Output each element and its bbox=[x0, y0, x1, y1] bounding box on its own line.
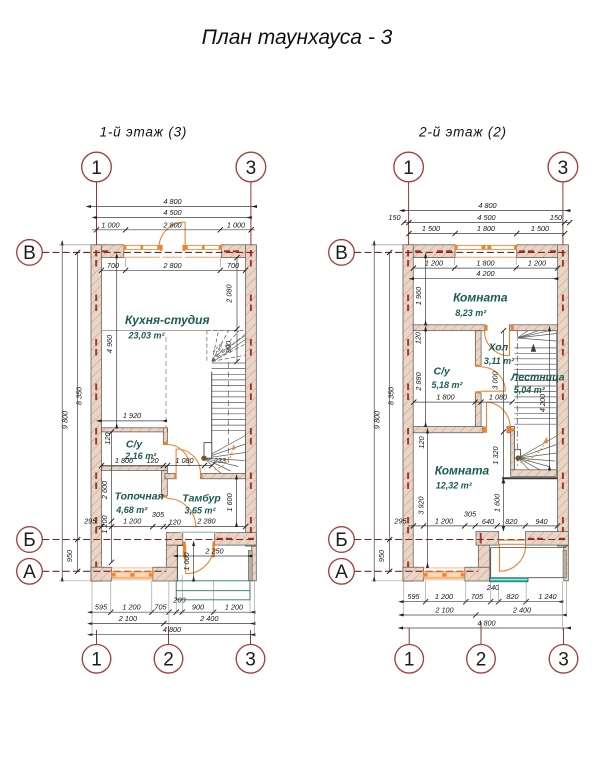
svg-text:233: 233 bbox=[213, 456, 226, 465]
svg-text:А: А bbox=[23, 562, 36, 583]
svg-text:1 500: 1 500 bbox=[422, 224, 440, 233]
svg-text:4 200: 4 200 bbox=[476, 269, 494, 278]
svg-text:Комната: Комната bbox=[453, 291, 508, 305]
svg-text:4,68 m²: 4,68 m² bbox=[115, 505, 148, 515]
svg-text:1 320: 1 320 bbox=[491, 446, 500, 464]
svg-text:1 920: 1 920 bbox=[123, 411, 141, 420]
svg-text:4 800: 4 800 bbox=[163, 625, 181, 634]
svg-text:Б: Б bbox=[335, 530, 347, 551]
svg-text:1: 1 bbox=[403, 158, 414, 179]
svg-text:595: 595 bbox=[95, 603, 108, 612]
svg-text:Кухня-студия: Кухня-студия bbox=[125, 313, 210, 327]
svg-text:150: 150 bbox=[388, 213, 400, 222]
svg-text:1 200: 1 200 bbox=[435, 592, 453, 601]
svg-text:2 400: 2 400 bbox=[199, 614, 218, 623]
svg-text:640: 640 bbox=[482, 517, 494, 526]
svg-text:4 200: 4 200 bbox=[538, 394, 547, 412]
svg-text:3: 3 bbox=[558, 158, 569, 179]
svg-text:В: В bbox=[335, 243, 348, 264]
svg-text:295: 295 bbox=[393, 516, 407, 525]
svg-text:900: 900 bbox=[224, 341, 233, 353]
svg-text:4 500: 4 500 bbox=[477, 213, 495, 222]
svg-text:1 200: 1 200 bbox=[528, 259, 546, 268]
svg-text:1 000: 1 000 bbox=[182, 552, 191, 570]
svg-text:5,18 m²: 5,18 m² bbox=[431, 380, 463, 390]
svg-text:1 240: 1 240 bbox=[538, 592, 556, 601]
svg-text:200: 200 bbox=[172, 595, 185, 604]
svg-text:120: 120 bbox=[146, 456, 158, 465]
svg-text:1 600: 1 600 bbox=[225, 493, 234, 511]
svg-text:120: 120 bbox=[169, 518, 181, 527]
svg-text:В: В bbox=[23, 243, 36, 264]
svg-text:2 100: 2 100 bbox=[118, 614, 137, 623]
svg-text:3,65 m²: 3,65 m² bbox=[184, 506, 216, 516]
svg-text:Лестница: Лестница bbox=[510, 371, 565, 383]
svg-text:2: 2 bbox=[476, 650, 487, 671]
svg-text:1 800: 1 800 bbox=[115, 456, 133, 465]
svg-text:С/у: С/у bbox=[434, 366, 452, 378]
svg-text:9 800: 9 800 bbox=[372, 411, 381, 429]
svg-text:2 800: 2 800 bbox=[162, 220, 181, 229]
svg-text:940: 940 bbox=[535, 517, 547, 526]
svg-text:2 080: 2 080 bbox=[225, 284, 234, 303]
svg-text:1 200: 1 200 bbox=[100, 515, 109, 533]
svg-text:4 500: 4 500 bbox=[163, 208, 181, 217]
svg-text:2 880: 2 880 bbox=[414, 372, 423, 391]
svg-text:3: 3 bbox=[558, 650, 569, 671]
svg-text:240: 240 bbox=[486, 583, 499, 592]
svg-text:1: 1 bbox=[91, 158, 102, 179]
svg-text:3 920: 3 920 bbox=[416, 496, 425, 514]
svg-text:1 200: 1 200 bbox=[425, 259, 443, 268]
svg-text:1 500: 1 500 bbox=[531, 224, 549, 233]
svg-text:С/у: С/у bbox=[126, 439, 144, 451]
svg-text:2 400: 2 400 bbox=[512, 605, 531, 614]
svg-text:1-й этаж (3): 1-й этаж (3) bbox=[100, 125, 188, 140]
svg-text:8,23 m²: 8,23 m² bbox=[455, 308, 487, 318]
svg-text:1: 1 bbox=[404, 650, 415, 671]
svg-text:3: 3 bbox=[245, 650, 256, 671]
svg-text:2 250: 2 250 bbox=[204, 546, 223, 555]
svg-text:1 200: 1 200 bbox=[435, 516, 453, 525]
svg-text:2 800: 2 800 bbox=[162, 261, 181, 270]
svg-text:120: 120 bbox=[414, 332, 423, 344]
svg-text:Топочная: Топочная bbox=[115, 491, 164, 503]
svg-text:295: 295 bbox=[83, 517, 97, 526]
svg-text:700: 700 bbox=[107, 261, 119, 270]
svg-text:8 350: 8 350 bbox=[386, 387, 395, 405]
svg-text:120: 120 bbox=[417, 436, 426, 448]
svg-text:1 200: 1 200 bbox=[225, 603, 243, 612]
svg-text:595: 595 bbox=[407, 592, 420, 601]
svg-text:950: 950 bbox=[377, 550, 386, 562]
svg-text:3: 3 bbox=[246, 158, 257, 179]
svg-text:А: А bbox=[335, 562, 348, 583]
svg-text:2-й этаж (2): 2-й этаж (2) bbox=[418, 125, 507, 140]
svg-text:1 080: 1 080 bbox=[489, 393, 507, 402]
svg-text:4 960: 4 960 bbox=[105, 335, 114, 353]
svg-text:1 800: 1 800 bbox=[477, 224, 495, 233]
svg-text:1 000: 1 000 bbox=[101, 220, 119, 229]
svg-text:1 960: 1 960 bbox=[414, 287, 423, 305]
svg-text:1 800: 1 800 bbox=[436, 393, 454, 402]
svg-text:9 800: 9 800 bbox=[60, 411, 69, 429]
svg-text:705: 705 bbox=[471, 592, 484, 601]
svg-text:305: 305 bbox=[152, 510, 165, 519]
svg-text:1 600: 1 600 bbox=[492, 494, 501, 512]
svg-text:5,04 m²: 5,04 m² bbox=[514, 385, 546, 395]
svg-text:3 000: 3 000 bbox=[490, 371, 499, 389]
svg-text:120: 120 bbox=[103, 432, 112, 444]
svg-text:820: 820 bbox=[505, 517, 517, 526]
svg-text:23,03 m²: 23,03 m² bbox=[127, 331, 165, 341]
svg-text:4 800: 4 800 bbox=[477, 618, 495, 627]
svg-text:1 080: 1 080 bbox=[175, 456, 193, 465]
svg-text:8 350: 8 350 bbox=[74, 387, 83, 405]
svg-text:12,32 m²: 12,32 m² bbox=[436, 481, 473, 491]
svg-text:705: 705 bbox=[154, 603, 167, 612]
svg-text:2 280: 2 280 bbox=[196, 517, 215, 526]
svg-text:Б: Б bbox=[23, 530, 35, 551]
svg-text:Хол: Хол bbox=[488, 342, 509, 354]
svg-text:План таунхауса - 3: План таунхауса - 3 bbox=[202, 26, 393, 49]
svg-text:3,11 m²: 3,11 m² bbox=[484, 356, 515, 366]
svg-text:900: 900 bbox=[192, 603, 204, 612]
svg-text:2 100: 2 100 bbox=[434, 605, 453, 614]
svg-text:150: 150 bbox=[550, 213, 562, 222]
svg-text:820: 820 bbox=[506, 592, 518, 601]
svg-text:305: 305 bbox=[464, 510, 477, 519]
svg-text:4 800: 4 800 bbox=[478, 201, 496, 210]
svg-text:1 000: 1 000 bbox=[227, 220, 245, 229]
svg-text:950: 950 bbox=[65, 550, 74, 562]
svg-text:1 800: 1 800 bbox=[476, 259, 494, 268]
svg-text:4 800: 4 800 bbox=[163, 197, 181, 206]
svg-text:Тамбур: Тамбур bbox=[182, 493, 221, 505]
svg-text:2: 2 bbox=[163, 650, 174, 671]
svg-text:1 200: 1 200 bbox=[122, 603, 140, 612]
svg-text:1 200: 1 200 bbox=[123, 517, 141, 526]
svg-text:2 600: 2 600 bbox=[100, 481, 109, 500]
svg-text:Комната: Комната bbox=[435, 464, 490, 478]
svg-text:1: 1 bbox=[91, 650, 102, 671]
